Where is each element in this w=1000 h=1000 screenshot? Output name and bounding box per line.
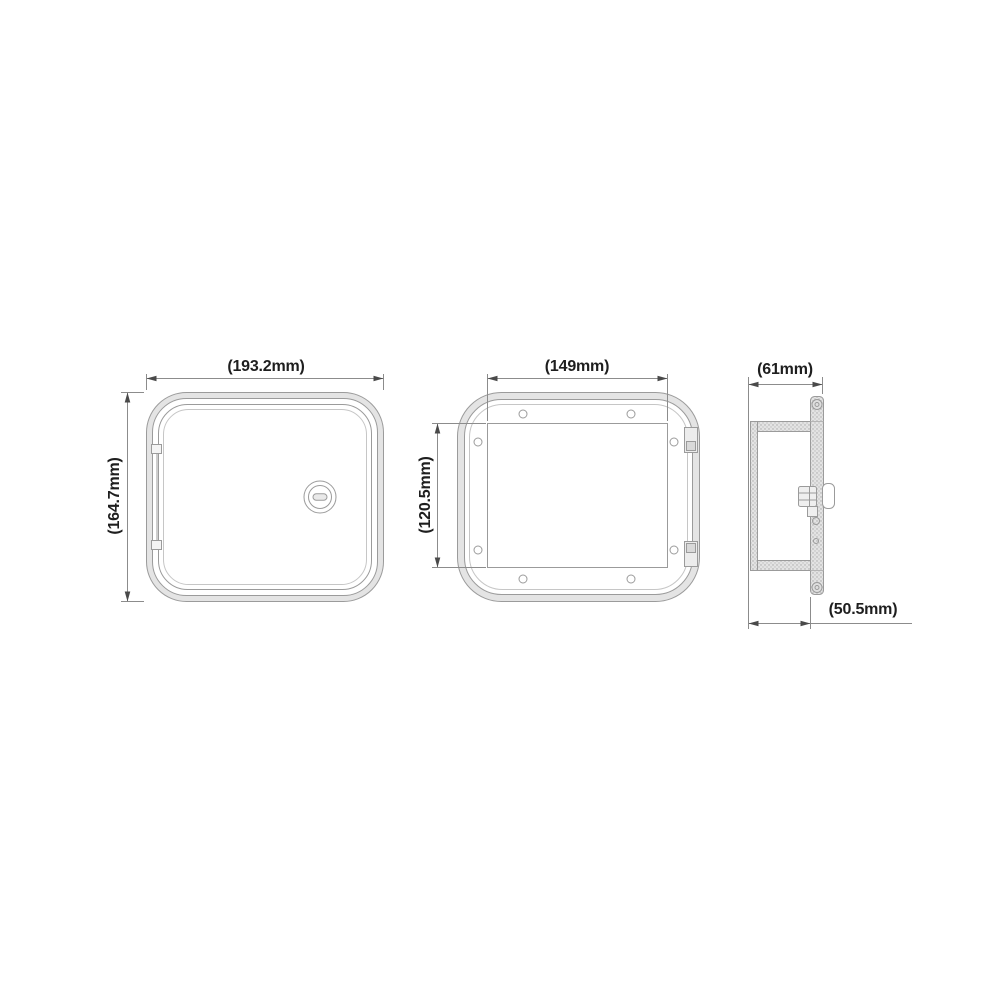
hinge-tab-bottom [685, 542, 698, 567]
side-bottom-wall [751, 561, 812, 571]
screw-hole [670, 438, 678, 446]
back-opening [488, 424, 668, 568]
back-height-dimension-label: (120.5mm) [417, 456, 435, 533]
side-top-wall [751, 422, 812, 432]
screw-hole [627, 575, 635, 583]
screw-hole [519, 575, 527, 583]
front-width-dimension-label: (193.2mm) [227, 358, 304, 376]
screw-hole [519, 410, 527, 418]
side-width-dimension-label: (61mm) [757, 361, 813, 379]
screw-hole [474, 546, 482, 554]
lock-cylinder [304, 481, 336, 513]
hinge-notch-top [152, 445, 162, 454]
drawing-canvas: (193.2mm) (164.7mm) (149mm) (120.5mm) (6… [0, 0, 1000, 1000]
screw-hole [627, 410, 635, 418]
side-depth-dimension-label: (50.5mm) [829, 601, 898, 619]
side-left-wall [751, 422, 758, 571]
hinge-tab-top [685, 428, 698, 453]
side-screw-top [812, 400, 822, 410]
front-view [147, 393, 384, 602]
latch-handle [823, 484, 835, 509]
screw-hole [670, 546, 678, 554]
technical-drawing [0, 0, 1000, 1000]
back-view [458, 393, 700, 602]
screw-hole [474, 438, 482, 446]
hinge-notch-bottom [152, 541, 162, 550]
back-width-dimension-label: (149mm) [545, 358, 609, 376]
side-view [751, 397, 835, 595]
front-height-dimension-label: (164.7mm) [106, 457, 124, 534]
side-screw-bottom [812, 583, 822, 593]
